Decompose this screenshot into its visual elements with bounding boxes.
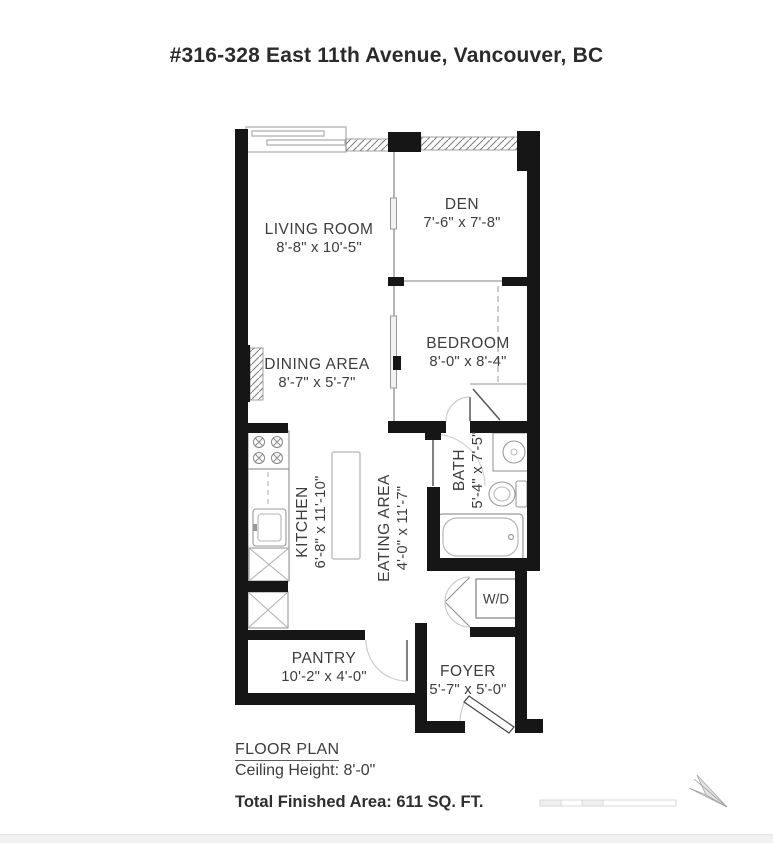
room-name: KITCHEN [293, 476, 312, 569]
pantry-door [366, 640, 407, 681]
bottom-edge-strip [0, 834, 773, 843]
dishwasher [249, 548, 289, 581]
room-name: DINING AREA [264, 355, 369, 374]
room-name: FOYER [429, 662, 506, 681]
room-dims: 4'-0" x 11'-7" [394, 474, 413, 582]
room-label-washer-dryer: W/D [483, 592, 509, 607]
sliding-glass-partition [391, 152, 402, 421]
room-dims: 7'-6" x 7'-8" [423, 214, 500, 233]
room-label-foyer: FOYER 5'-7" x 5'-0" [429, 662, 506, 700]
room-name: BATH [450, 431, 469, 508]
room-label-kitchen: KITCHEN 6'-8" x 11'-10" [293, 476, 331, 569]
entry-door [460, 696, 514, 733]
window-hatch-strips [346, 137, 518, 151]
bedroom-door [446, 397, 470, 421]
room-label-eating-area: EATING AREA 4'-0" x 11'-7" [375, 474, 413, 582]
room-dims: 8'-0" x 8'-4" [426, 353, 510, 372]
living-room-window [246, 127, 346, 152]
ceiling-height-label: Ceiling Height: 8'-0" [235, 762, 375, 780]
room-name: LIVING ROOM [265, 220, 374, 239]
bathtub [438, 514, 523, 560]
room-label-living-room: LIVING ROOM 8'-8" x 10'-5" [265, 220, 374, 258]
room-label-dining-area: DINING AREA 8'-7" x 5'-7" [264, 355, 369, 393]
scale-bar-icon [540, 800, 676, 806]
kitchen-island [332, 452, 360, 559]
room-dims: 8'-7" x 5'-7" [264, 374, 369, 393]
room-name: DEN [423, 195, 500, 214]
room-dims: 5'-7" x 5'-0" [429, 681, 506, 700]
room-dims: 10'-2" x 4'-0" [281, 668, 367, 687]
washer-dryer-doors [445, 577, 470, 627]
room-label-den: DEN 7'-6" x 7'-8" [423, 195, 500, 233]
total-area-label: Total Finished Area: 611 SQ. FT. [235, 793, 483, 812]
room-dims: 5'-4" x 7'-5" [469, 431, 488, 508]
floor-plan-page: #316-328 East 11th Avenue, Vancouver, BC… [0, 0, 773, 843]
room-dims: 6'-8" x 11'-10" [312, 476, 331, 569]
floor-plan-label: FLOOR PLAN [235, 741, 339, 761]
room-dims: 8'-8" x 10'-5" [265, 239, 374, 258]
page-title: #316-328 East 11th Avenue, Vancouver, BC [0, 44, 773, 68]
room-label-bath: BATH 5'-4" x 7'-5" [450, 431, 488, 508]
room-label-pantry: PANTRY 10'-2" x 4'-0" [281, 649, 367, 687]
refrigerator-closet [248, 592, 288, 628]
fireplace-hatch [250, 348, 263, 400]
toilet [489, 481, 527, 507]
room-label-bedroom: BEDROOM 8'-0" x 8'-4" [426, 334, 510, 372]
room-name: EATING AREA [375, 474, 394, 582]
floor-plan-drawing [0, 0, 773, 843]
north-arrow-icon [689, 775, 727, 807]
room-name: BEDROOM [426, 334, 510, 353]
room-name: PANTRY [281, 649, 367, 668]
kitchen-sink [253, 509, 286, 546]
